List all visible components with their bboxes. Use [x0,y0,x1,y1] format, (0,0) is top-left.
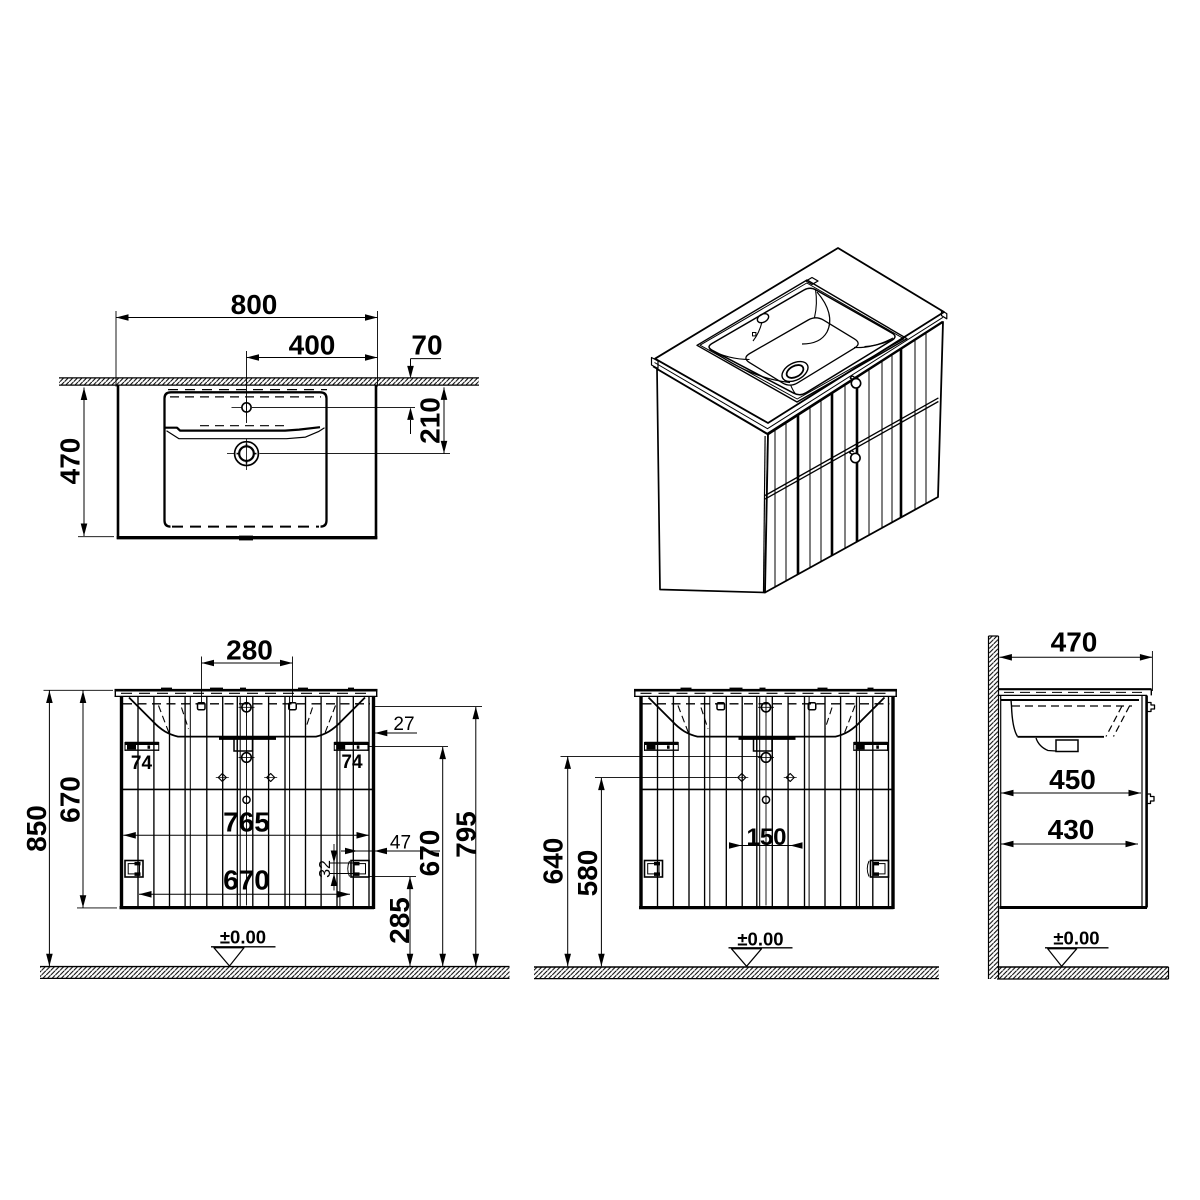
svg-text:150: 150 [746,824,786,851]
svg-text:580: 580 [572,850,603,897]
svg-text:670: 670 [223,865,270,896]
svg-text:800: 800 [231,289,278,320]
svg-text:74: 74 [131,753,153,774]
svg-text:670: 670 [414,830,445,877]
svg-text:±0.00: ±0.00 [1053,928,1099,949]
svg-text:70: 70 [411,330,442,361]
svg-text:280: 280 [226,635,273,666]
svg-text:74: 74 [341,752,363,773]
svg-text:±0.00: ±0.00 [220,926,266,947]
svg-text:765: 765 [223,807,270,838]
svg-text:640: 640 [538,838,569,885]
svg-text:470: 470 [55,438,86,485]
svg-text:450: 450 [1049,764,1096,795]
svg-text:47: 47 [390,833,411,854]
svg-text:±0.00: ±0.00 [737,928,783,949]
svg-text:850: 850 [21,805,52,852]
svg-text:400: 400 [289,330,336,361]
svg-text:430: 430 [1048,814,1095,845]
svg-text:27: 27 [393,714,414,735]
svg-text:795: 795 [451,811,482,858]
svg-text:470: 470 [1051,627,1098,658]
svg-text:210: 210 [415,397,446,444]
svg-text:670: 670 [55,776,86,823]
